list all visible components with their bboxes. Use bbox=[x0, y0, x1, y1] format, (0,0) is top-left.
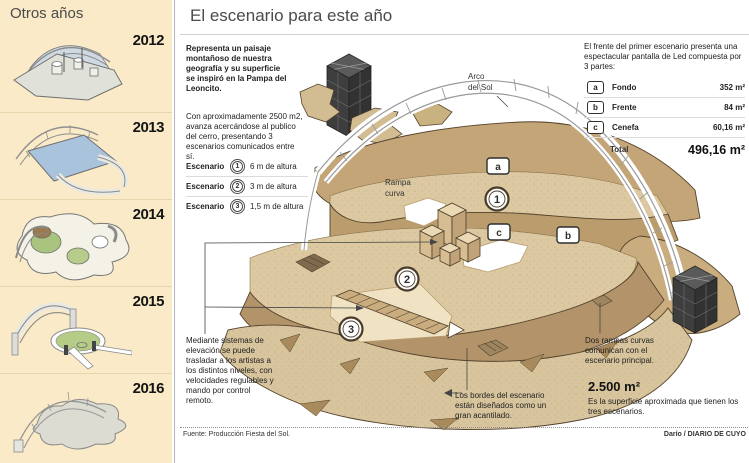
stage-3-badge: 3 bbox=[230, 199, 245, 214]
led-name-a: Fondo bbox=[612, 83, 720, 93]
stage-2016-thumbnail-illustration bbox=[2, 376, 132, 458]
marker-c-label: c bbox=[496, 228, 502, 239]
stage-2013-thumbnail-illustration bbox=[2, 115, 132, 197]
page-title: El escenario para este año bbox=[190, 6, 392, 26]
sidebar-title: Otros años bbox=[10, 5, 83, 22]
year-label: 2015 bbox=[133, 293, 164, 310]
led-value-b: 84 m² bbox=[724, 103, 745, 113]
led-total-label: Total bbox=[610, 145, 688, 155]
led-tower-right bbox=[673, 266, 717, 333]
total-area-value: 2.500 m² bbox=[588, 379, 746, 394]
rampa-curva-label-line1: Rampa bbox=[385, 178, 411, 187]
year-block-2012: 2012 bbox=[0, 26, 172, 113]
led-value-a: 352 m² bbox=[720, 83, 745, 93]
stage-2012-thumbnail-illustration bbox=[2, 28, 132, 110]
stage-3-height: 1,5 m de altura bbox=[250, 202, 303, 211]
marker-3-label: 3 bbox=[348, 324, 354, 336]
marker-2-label: 2 bbox=[404, 274, 410, 286]
author-credit: Darío / DIARIO DE CUYO bbox=[664, 431, 746, 438]
arco-del-sol-label-line1: Arco bbox=[468, 72, 485, 81]
stage-height-list: Escenario 1 6 m de altura Escenario 2 3 … bbox=[186, 157, 308, 216]
led-value-c: 60,16 m² bbox=[713, 123, 745, 133]
note-stage-borders: Los bordes del escenario están diseñados… bbox=[455, 391, 553, 421]
sidebar-main-divider bbox=[174, 0, 175, 463]
stage-label: Escenario bbox=[186, 202, 230, 211]
year-label: 2012 bbox=[133, 32, 164, 49]
footer-rule bbox=[180, 427, 748, 428]
led-name-c: Cenefa bbox=[612, 123, 713, 133]
led-total-value: 496,16 m² bbox=[688, 145, 745, 155]
intro-paragraph-bold: Representa un paisaje montañoso de nuest… bbox=[186, 44, 290, 94]
marker-1-label: 1 bbox=[494, 194, 500, 206]
stage-2015-thumbnail-illustration bbox=[2, 289, 132, 371]
led-row-c: c Cenefa 60,16 m² bbox=[584, 118, 745, 138]
stage-row-2: Escenario 2 3 m de altura bbox=[186, 177, 308, 197]
led-key-c-badge: c bbox=[587, 121, 604, 134]
year-block-2015: 2015 bbox=[0, 287, 172, 374]
arco-del-sol-label-line2: del Sol bbox=[468, 83, 493, 92]
stage-label: Escenario bbox=[186, 162, 230, 171]
year-label: 2014 bbox=[133, 206, 164, 223]
source-credit: Fuente: Producción Fiesta del Sol. bbox=[183, 431, 290, 438]
led-key-b-badge: b bbox=[587, 101, 604, 114]
infographic-page: { "sidebar": { "title": "Otros años", "y… bbox=[0, 0, 749, 463]
sidebar-otros-anos: Otros años 2012 2013 bbox=[0, 0, 172, 463]
year-list: 2012 2013 bbox=[0, 26, 172, 460]
rampa-curva-label-line2: curva bbox=[385, 189, 405, 198]
stage-2-height: 3 m de altura bbox=[250, 182, 297, 191]
led-row-a: a Fondo 352 m² bbox=[584, 78, 745, 98]
stage-2-badge: 2 bbox=[230, 179, 245, 194]
total-area-description: Es la superficie aproximada que tienen l… bbox=[588, 397, 746, 417]
year-label: 2016 bbox=[133, 380, 164, 397]
stage-2014-thumbnail-illustration bbox=[2, 202, 132, 284]
marker-b-label: b bbox=[565, 231, 571, 242]
stage-row-3: Escenario 3 1,5 m de altura bbox=[186, 197, 308, 216]
intro-paragraph: Con aproximadamente 2500 m2, avanza acer… bbox=[186, 112, 304, 162]
marker-a-label: a bbox=[495, 162, 501, 173]
stage-1-badge: 1 bbox=[230, 159, 245, 174]
year-block-2013: 2013 bbox=[0, 113, 172, 200]
total-area-block: 2.500 m² Es la superficie aproximada que… bbox=[588, 379, 746, 417]
note-curved-ramps: Dos rampas curvas comunican con el escen… bbox=[585, 336, 683, 366]
stage-1-height: 6 m de altura bbox=[250, 162, 297, 171]
year-label: 2013 bbox=[133, 119, 164, 136]
led-row-b: b Frente 84 m² bbox=[584, 98, 745, 118]
led-total-row: Total 496,16 m² bbox=[584, 145, 745, 155]
note-elevation-systems: Mediante sistemas de elevación se puede … bbox=[186, 336, 276, 406]
year-block-2016: 2016 bbox=[0, 374, 172, 460]
stage-row-1: Escenario 1 6 m de altura bbox=[186, 157, 308, 177]
led-key-a-badge: a bbox=[587, 81, 604, 94]
led-name-b: Frente bbox=[612, 103, 724, 113]
year-block-2014: 2014 bbox=[0, 200, 172, 287]
led-intro-text: El frente del primer escenario presenta … bbox=[584, 42, 745, 72]
led-screen-panel: El frente del primer escenario presenta … bbox=[584, 42, 745, 155]
stage-label: Escenario bbox=[186, 182, 230, 191]
